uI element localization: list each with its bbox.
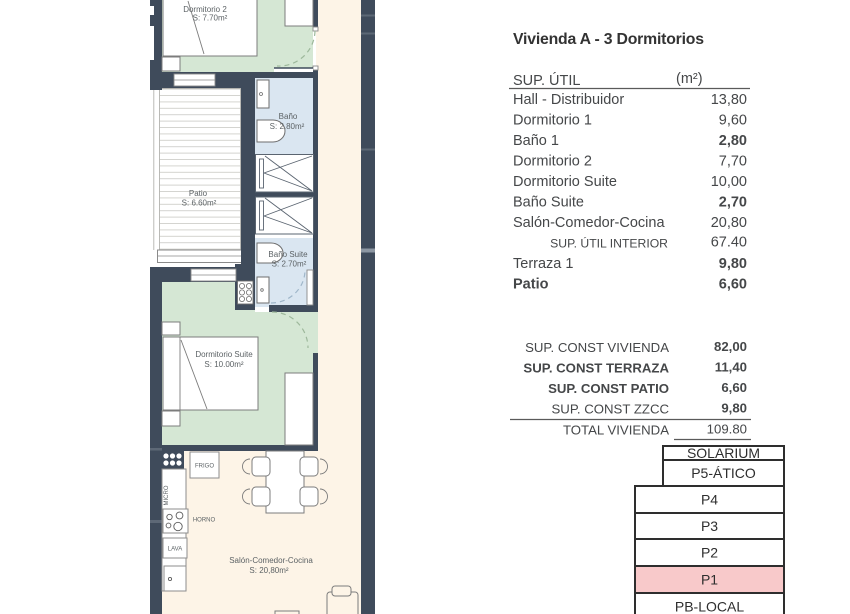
svg-text:P3: P3 <box>701 518 718 534</box>
svg-text:SUP. CONST TERRAZA: SUP. CONST TERRAZA <box>523 361 669 376</box>
svg-text:6,60: 6,60 <box>719 277 747 293</box>
svg-text:10,00: 10,00 <box>711 174 747 190</box>
svg-text:SUP. CONST VIVIENDA: SUP. CONST VIVIENDA <box>525 340 669 355</box>
svg-text:Patio: Patio <box>189 189 208 198</box>
svg-text:(m²): (m²) <box>676 71 703 87</box>
svg-text:P5-ÁTICO: P5-ÁTICO <box>691 465 756 481</box>
svg-text:P2: P2 <box>701 545 718 561</box>
svg-text:11,40: 11,40 <box>715 360 747 375</box>
svg-text:9,60: 9,60 <box>719 113 747 129</box>
svg-text:7,70: 7,70 <box>719 154 747 170</box>
svg-text:9,80: 9,80 <box>719 256 747 272</box>
svg-text:Dormitorio 1: Dormitorio 1 <box>513 113 592 129</box>
svg-text:109.80: 109.80 <box>707 422 747 437</box>
svg-text:SUP. CONST ZZCC: SUP. CONST ZZCC <box>552 402 670 417</box>
svg-text:SUP. ÚTIL: SUP. ÚTIL <box>513 72 580 89</box>
svg-text:82,00: 82,00 <box>714 339 747 354</box>
svg-text:Dormitorio 2: Dormitorio 2 <box>513 154 592 170</box>
svg-text:Salón-Comedor-Cocina: Salón-Comedor-Cocina <box>229 556 313 565</box>
svg-text:S: 2.70m²: S: 2.70m² <box>272 260 307 269</box>
svg-text:MICRO: MICRO <box>164 485 170 505</box>
svg-text:Patio: Patio <box>513 277 549 293</box>
svg-text:Terraza 1: Terraza 1 <box>513 256 573 272</box>
svg-text:Baño 1: Baño 1 <box>513 133 559 149</box>
svg-text:SOLARIUM: SOLARIUM <box>687 445 760 461</box>
svg-text:LAVA: LAVA <box>168 547 182 553</box>
svg-text:67.40: 67.40 <box>711 235 747 251</box>
svg-text:SUP. ÚTIL INTERIOR: SUP. ÚTIL INTERIOR <box>550 236 668 251</box>
svg-text:PB-LOCAL: PB-LOCAL <box>675 599 744 614</box>
svg-text:Dormitorio Suite: Dormitorio Suite <box>195 350 253 359</box>
svg-text:13,80: 13,80 <box>711 92 747 108</box>
svg-text:P1: P1 <box>701 572 718 588</box>
svg-text:Salón-Comedor-Cocina: Salón-Comedor-Cocina <box>513 215 665 231</box>
svg-text:Dormitorio Suite: Dormitorio Suite <box>513 174 617 190</box>
svg-text:20,80: 20,80 <box>711 215 747 231</box>
svg-text:S: 10.00m²: S: 10.00m² <box>204 360 243 369</box>
svg-text:2,80: 2,80 <box>719 133 747 149</box>
svg-text:Baño Suite: Baño Suite <box>268 250 308 259</box>
svg-text:2,70: 2,70 <box>719 195 747 211</box>
svg-text:Baño Suite: Baño Suite <box>513 195 584 211</box>
svg-text:TOTAL VIVIENDA: TOTAL VIVIENDA <box>563 423 669 438</box>
svg-text:SUP. CONST PATIO: SUP. CONST PATIO <box>548 381 669 396</box>
svg-text:S: 2.80m²: S: 2.80m² <box>270 122 305 131</box>
svg-text:Baño: Baño <box>279 112 298 121</box>
svg-text:FRIGO: FRIGO <box>195 464 214 470</box>
svg-text:Hall - Distribuidor: Hall - Distribuidor <box>513 92 624 108</box>
svg-text:Vivienda A - 3 Dormitorios: Vivienda A - 3 Dormitorios <box>513 31 704 48</box>
svg-text:HORNO: HORNO <box>193 518 216 524</box>
svg-text:S: 7.70m²: S: 7.70m² <box>193 14 228 23</box>
svg-text:9,80: 9,80 <box>721 401 747 416</box>
svg-text:S: 6.60m²: S: 6.60m² <box>182 199 217 208</box>
svg-text:P4: P4 <box>701 492 718 508</box>
svg-text:S: 20,80m²: S: 20,80m² <box>249 566 288 575</box>
svg-text:6,60: 6,60 <box>721 380 747 395</box>
